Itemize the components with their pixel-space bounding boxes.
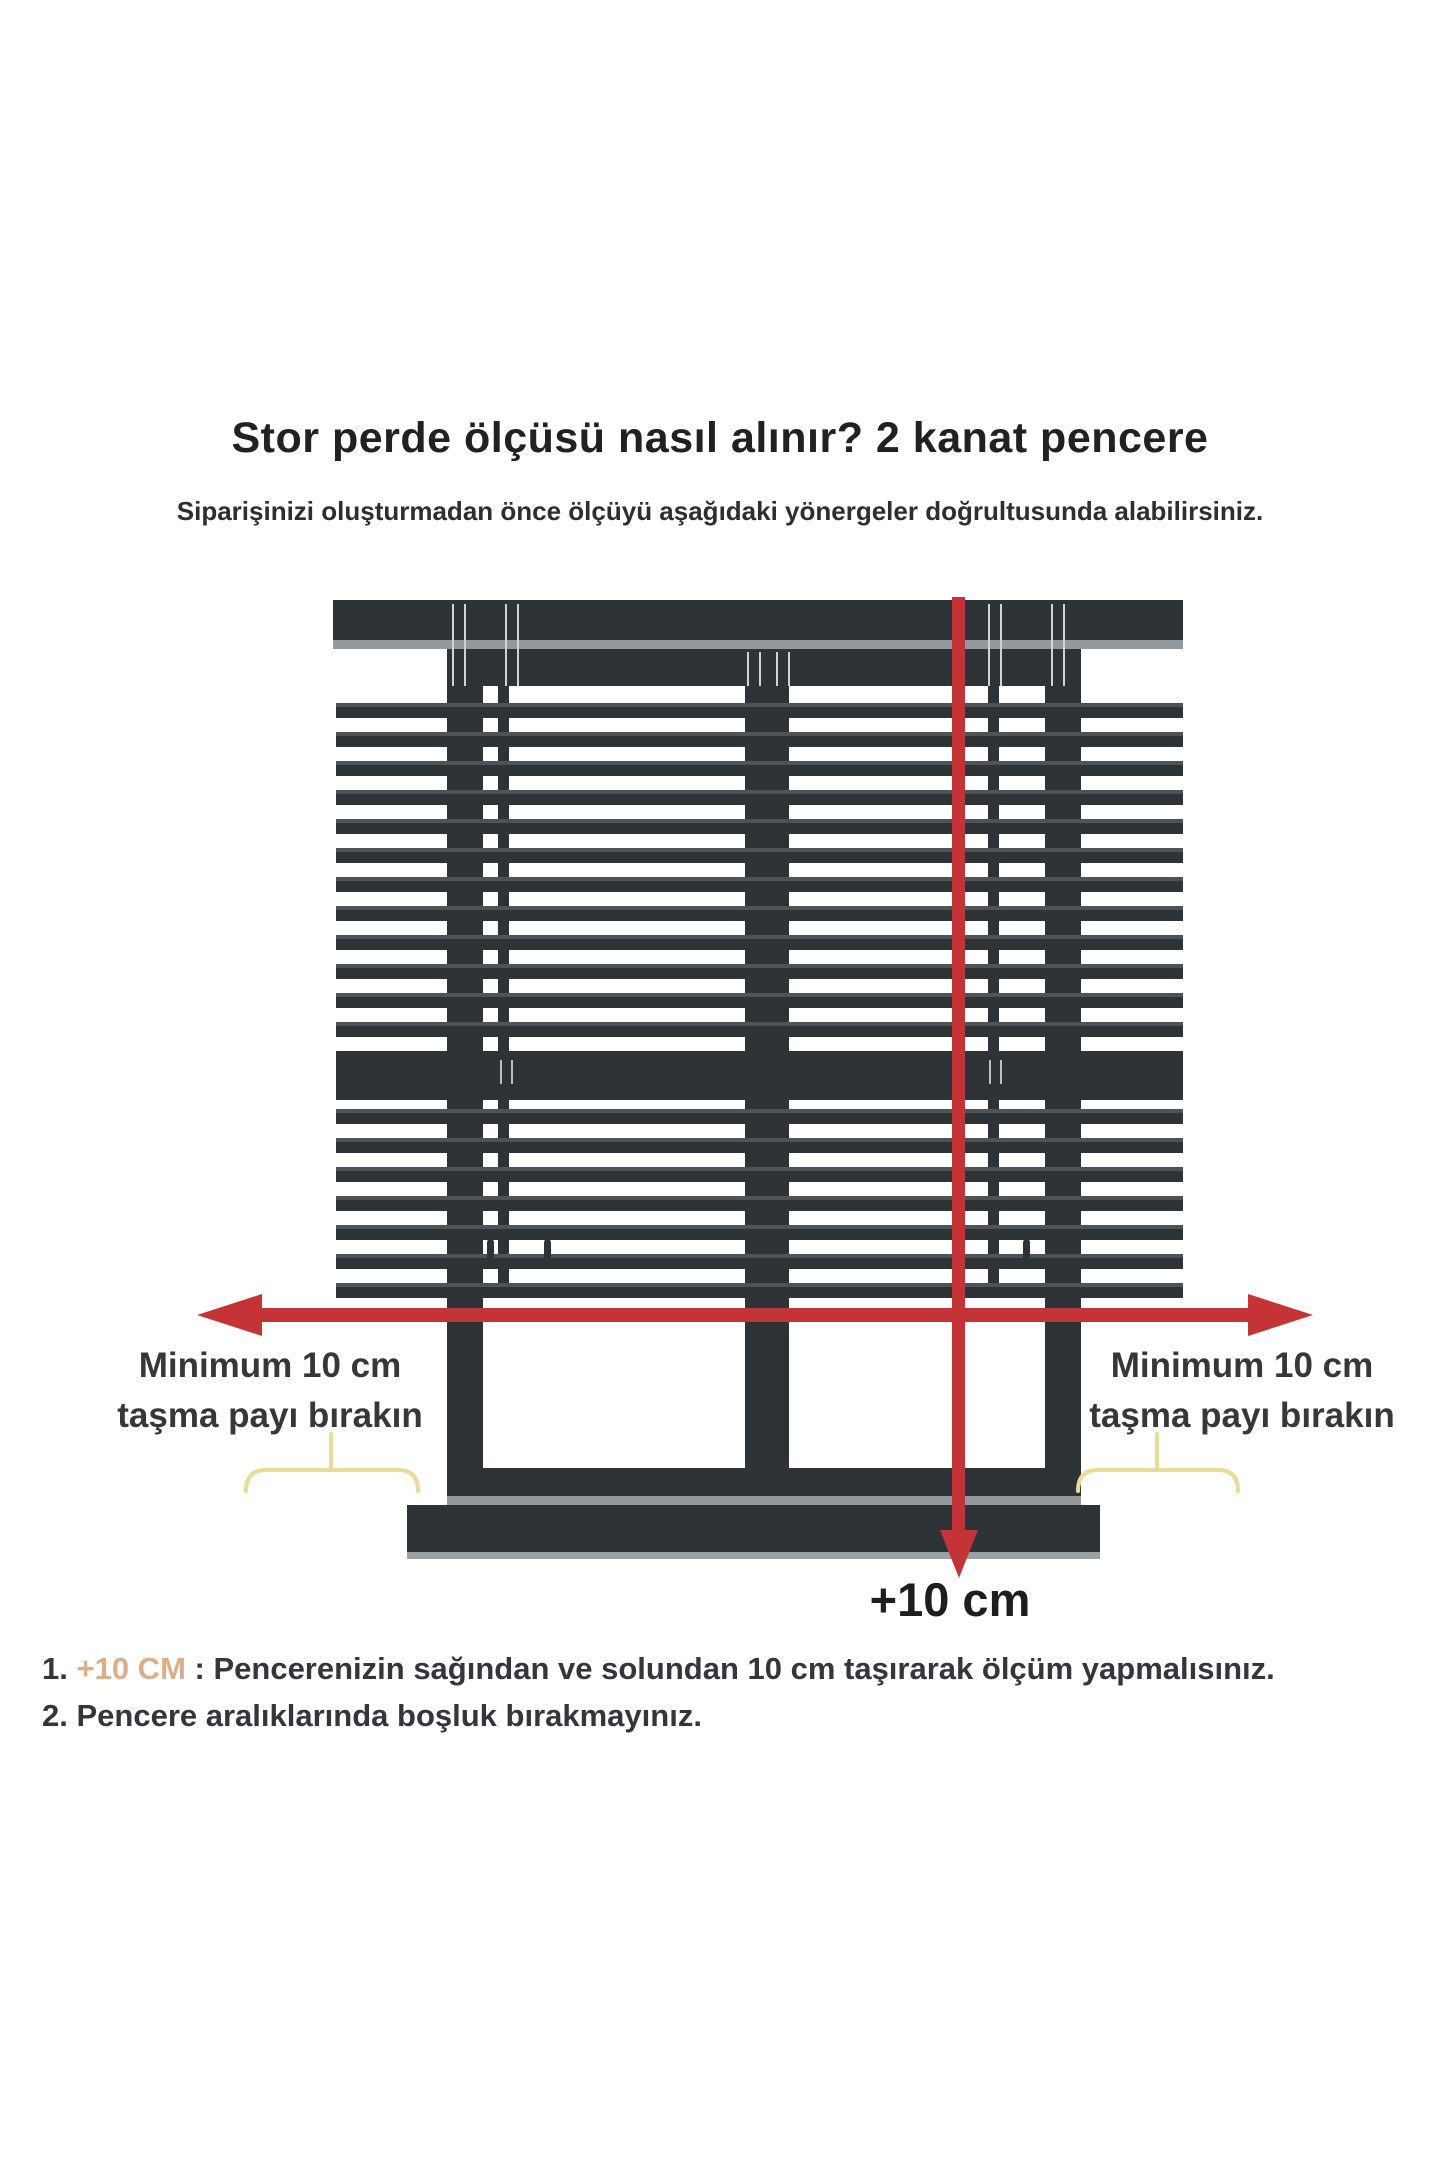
- blind-headrail: [333, 600, 1183, 640]
- note-1-highlight: +10 CM: [76, 1651, 185, 1686]
- right-overhang-bracket: [1078, 1434, 1238, 1491]
- bottom-measurement-label: +10 cm: [835, 1572, 1065, 1627]
- note-line-2: 2. Pencere aralıklarında boşluk bırakmay…: [42, 1692, 1422, 1739]
- right-overhang-label: Minimum 10 cm taşma payı bırakın: [1057, 1341, 1427, 1441]
- venetian-blind: [333, 600, 1183, 1298]
- note-2-text: Pencere aralıklarında boşluk bırakmayını…: [76, 1698, 701, 1733]
- page-title: Stor perde ölçüsü nasıl alınır? 2 kanat …: [0, 414, 1440, 463]
- note-1-text: Pencerenizin sağından ve solundan 10 cm …: [213, 1651, 1274, 1686]
- note-1-separator: :: [186, 1651, 214, 1686]
- instruction-notes: 1. +10 CM : Pencerenizin sağından ve sol…: [42, 1645, 1422, 1739]
- right-overhang-label-line2: taşma payı bırakın: [1057, 1391, 1427, 1441]
- blind-slats: [336, 703, 1183, 1298]
- left-overhang-bracket: [246, 1434, 418, 1491]
- left-overhang-label-line2: taşma payı bırakın: [85, 1391, 455, 1441]
- page: { "header": { "title": "Stor perde ölçüs…: [0, 0, 1440, 2160]
- measurement-diagram: [0, 0, 1440, 2160]
- window-sill: [407, 1505, 1100, 1552]
- blind-middle-band: [336, 1051, 1183, 1100]
- note-2-number: 2.: [42, 1698, 68, 1733]
- right-overhang-label-line1: Minimum 10 cm: [1057, 1341, 1427, 1391]
- left-overhang-label-line1: Minimum 10 cm: [85, 1341, 455, 1391]
- note-line-1: 1. +10 CM : Pencerenizin sağından ve sol…: [42, 1645, 1422, 1692]
- left-overhang-label: Minimum 10 cm taşma payı bırakın: [85, 1341, 455, 1441]
- note-1-number: 1.: [42, 1651, 68, 1686]
- page-subtitle: Siparişinizi oluşturmadan önce ölçüyü aş…: [0, 496, 1440, 527]
